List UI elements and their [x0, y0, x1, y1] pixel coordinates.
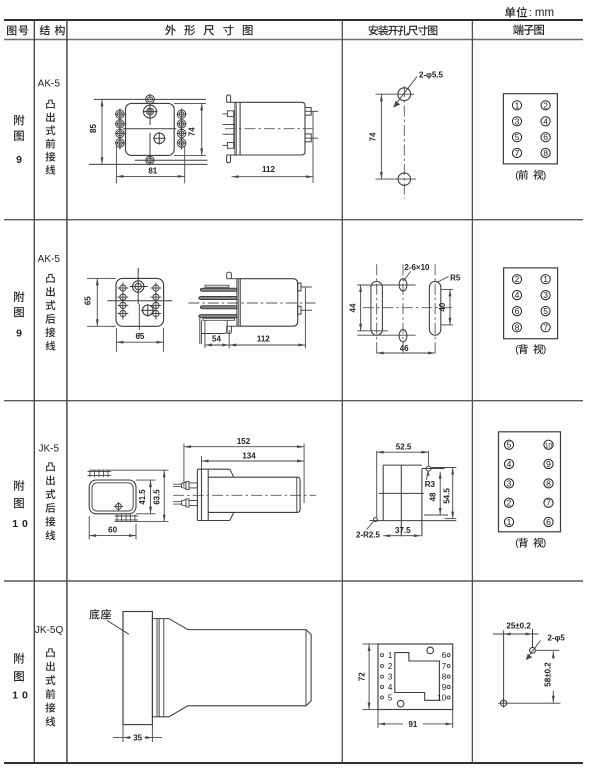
svg-text:6: 6	[543, 132, 548, 142]
svg-text:9: 9	[16, 154, 22, 166]
svg-text:6: 6	[442, 651, 447, 660]
svg-text:37.5: 37.5	[395, 526, 411, 535]
svg-text:91: 91	[408, 720, 417, 729]
svg-text:6: 6	[515, 306, 520, 316]
svg-text:152: 152	[237, 437, 251, 446]
svg-text:40: 40	[438, 302, 447, 311]
svg-text:74: 74	[369, 132, 378, 141]
svg-text:1 0: 1 0	[12, 689, 28, 701]
svg-text:1: 1	[507, 517, 512, 527]
svg-text:5: 5	[543, 306, 548, 316]
svg-text:85: 85	[89, 124, 98, 133]
svg-text:3: 3	[543, 290, 548, 300]
svg-text:8: 8	[515, 322, 520, 332]
svg-text::: :	[529, 7, 532, 19]
svg-text:): )	[543, 537, 547, 549]
svg-text:44: 44	[349, 303, 358, 312]
svg-text:54: 54	[212, 335, 221, 344]
svg-text:54.5: 54.5	[442, 488, 451, 504]
svg-text:AK-5: AK-5	[38, 79, 61, 90]
svg-text:(: (	[515, 344, 519, 356]
svg-text:6: 6	[546, 517, 551, 527]
svg-text:mm: mm	[535, 7, 554, 19]
svg-text:3: 3	[507, 478, 512, 488]
svg-text:5: 5	[507, 440, 512, 450]
svg-text:1 0: 1 0	[12, 518, 28, 530]
svg-text:4: 4	[543, 116, 548, 126]
svg-text:1: 1	[543, 274, 548, 284]
svg-text:9: 9	[546, 459, 551, 469]
svg-text:8: 8	[442, 673, 447, 682]
svg-text:46: 46	[400, 344, 409, 353]
svg-text:112: 112	[257, 335, 270, 344]
svg-text:72: 72	[357, 672, 366, 681]
svg-text:65: 65	[84, 296, 93, 305]
svg-text:8: 8	[543, 148, 548, 158]
svg-text:7: 7	[515, 148, 520, 158]
svg-text:4: 4	[507, 459, 512, 469]
svg-text:JK-5: JK-5	[39, 443, 60, 454]
svg-text:JK-5Q: JK-5Q	[35, 625, 64, 636]
svg-text:(: (	[515, 537, 519, 549]
svg-text:5: 5	[515, 132, 520, 142]
svg-text:4: 4	[388, 683, 393, 692]
svg-text:9: 9	[16, 327, 22, 339]
svg-text:(: (	[515, 169, 519, 181]
svg-text:63.5: 63.5	[152, 489, 161, 505]
svg-text:2: 2	[507, 498, 512, 508]
svg-text:41.5: 41.5	[138, 489, 147, 505]
svg-text:35: 35	[133, 733, 142, 742]
svg-text:25±0.2: 25±0.2	[506, 622, 531, 631]
svg-text:60: 60	[108, 525, 117, 534]
svg-text:2-φ5.5: 2-φ5.5	[419, 71, 444, 80]
svg-text:9: 9	[442, 683, 447, 692]
svg-text:7: 7	[543, 322, 548, 332]
svg-text:2-6×10: 2-6×10	[404, 263, 430, 272]
svg-text:1: 1	[388, 651, 393, 660]
svg-text:74: 74	[188, 127, 197, 136]
svg-text:112: 112	[262, 165, 275, 174]
svg-text:R5: R5	[450, 273, 461, 282]
svg-text:2: 2	[388, 662, 393, 671]
svg-text:10: 10	[437, 693, 446, 702]
svg-text:5: 5	[388, 693, 393, 702]
svg-text:3: 3	[388, 673, 393, 682]
svg-text:2: 2	[543, 100, 548, 110]
svg-text:52.5: 52.5	[396, 443, 412, 452]
svg-text:2: 2	[515, 274, 520, 284]
svg-text:): )	[543, 169, 547, 181]
svg-text:AK-5: AK-5	[38, 254, 61, 265]
svg-text:7: 7	[442, 662, 447, 671]
svg-text:134: 134	[242, 452, 256, 461]
svg-text:81: 81	[148, 166, 157, 175]
svg-text:2-φ5: 2-φ5	[548, 633, 566, 642]
svg-text:7: 7	[546, 498, 551, 508]
svg-text:): )	[543, 344, 547, 356]
svg-text:4: 4	[515, 290, 520, 300]
svg-text:65: 65	[135, 332, 144, 341]
svg-text:48: 48	[428, 492, 437, 501]
svg-text:2-R2.5: 2-R2.5	[356, 531, 381, 540]
svg-text:1: 1	[515, 100, 520, 110]
svg-text:R3: R3	[425, 480, 436, 489]
svg-text:3: 3	[515, 116, 520, 126]
svg-text:8: 8	[546, 478, 551, 488]
svg-text:58±0.2: 58±0.2	[544, 662, 553, 687]
svg-text:10: 10	[545, 443, 553, 450]
